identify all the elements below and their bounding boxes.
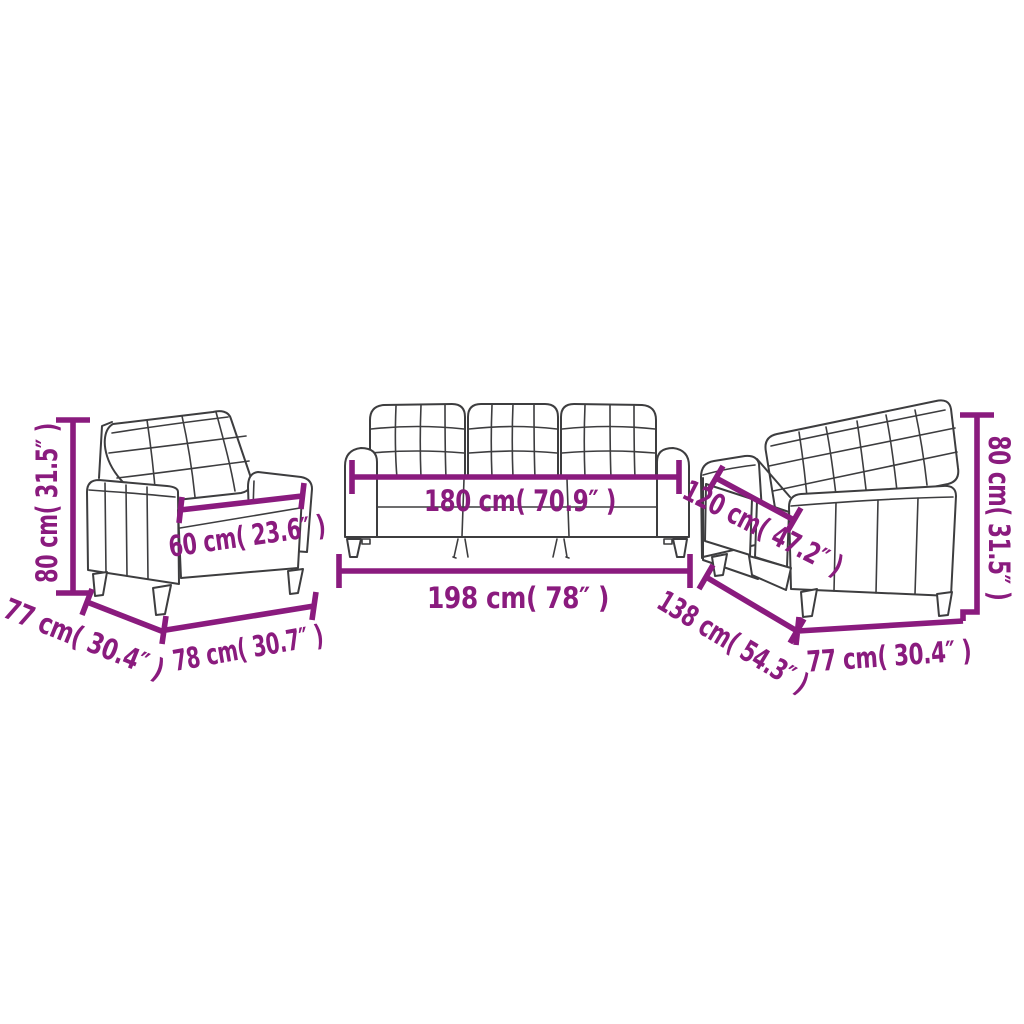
sofa-set-dimension-diagram: 80 cm( 31.5″ ) 77 cm( 30.4″ ) 78 cm( 30.… [0,0,1024,1024]
armchair-height-label: 80 cm( 31.5″ ) [30,423,64,583]
sofa2-front-leg [801,589,817,617]
sofa3-center-right-legs [553,539,569,558]
armchair-left-arm-seam [105,483,106,573]
sofa2-depth-label: 77 cm( 30.4″ ) [806,633,973,678]
sofa3-left-leg [347,539,361,557]
sofa2-height-label: 80 cm( 31.5″ ) [982,436,1016,601]
sofa3-seat-width-label: 180 cm( 70.9″ ) [424,484,616,518]
armchair-rear-left-leg [93,572,107,596]
sofa3-left-leg-bracket [362,539,370,544]
armchair-drawing [87,411,312,615]
sofa3-right-leg-bracket [664,539,672,544]
armchair-left-arm-seam [147,487,148,579]
three-seater-sofa-drawing [345,404,689,558]
sofa3-right-leg [673,539,687,557]
sofa3-back-cushion [370,404,465,478]
sofa3-center-left-legs [453,539,468,558]
diagram-canvas: 80 cm( 31.5″ ) 77 cm( 30.4″ ) 78 cm( 30.… [0,0,1024,1024]
sofa3-back-cushion [561,404,656,478]
sofa2-far-leg [712,554,727,576]
armchair-left-arm-seam [126,485,127,576]
armchair-front-leg [153,585,171,615]
sofa3-width-label: 198 cm( 78″ ) [427,581,609,615]
sofa2-right-leg [937,592,952,616]
armchair-right-leg [288,569,303,594]
